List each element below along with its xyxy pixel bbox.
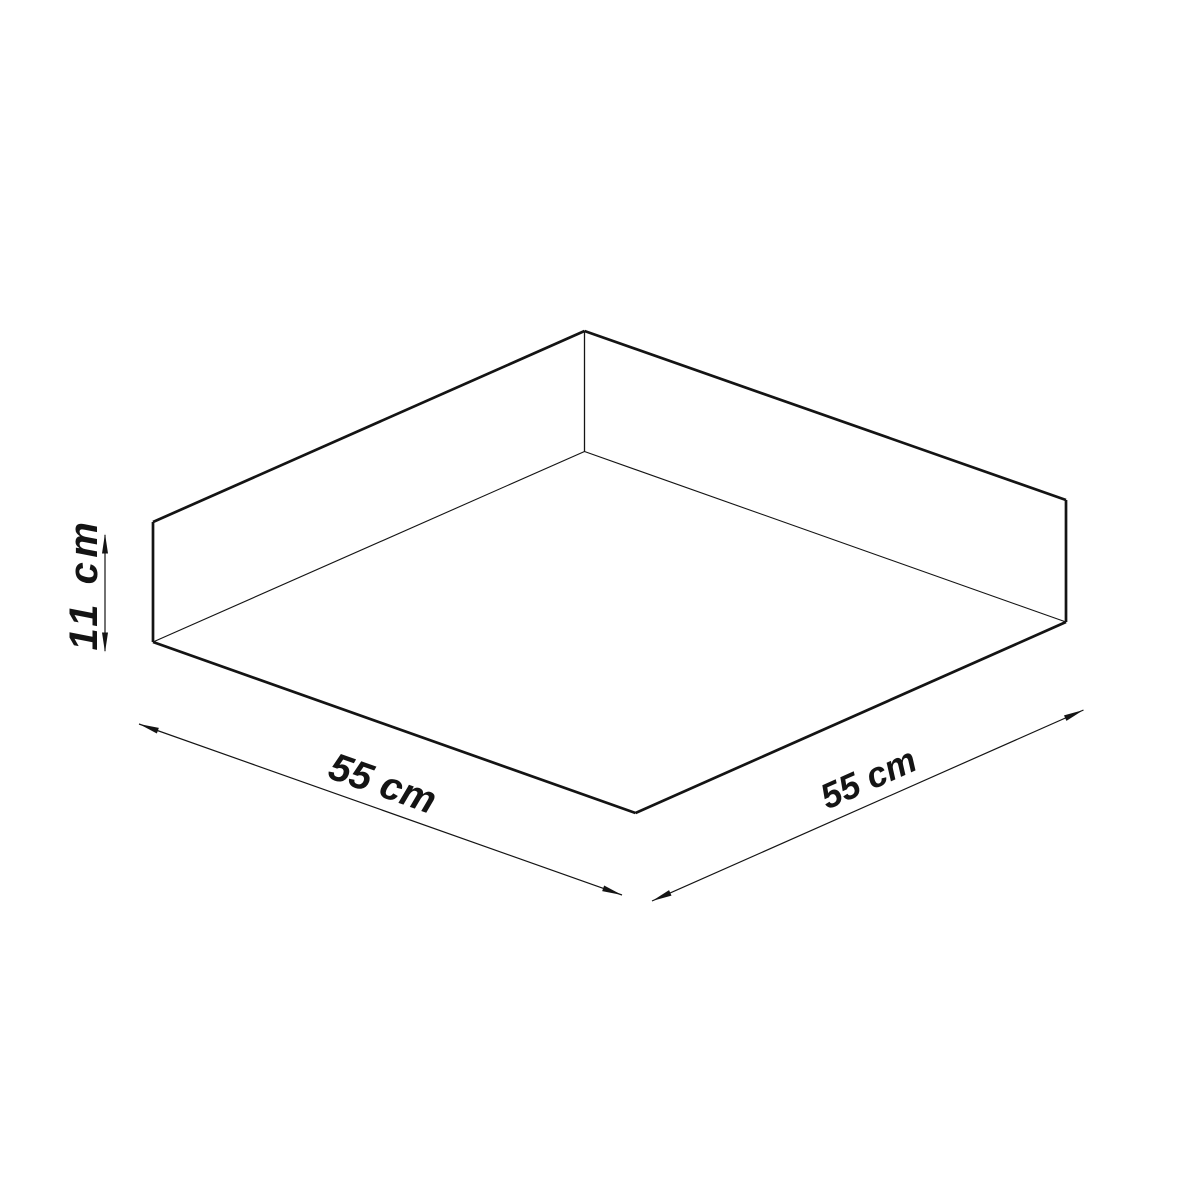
- svg-text:11 cm: 11 cm: [62, 518, 106, 651]
